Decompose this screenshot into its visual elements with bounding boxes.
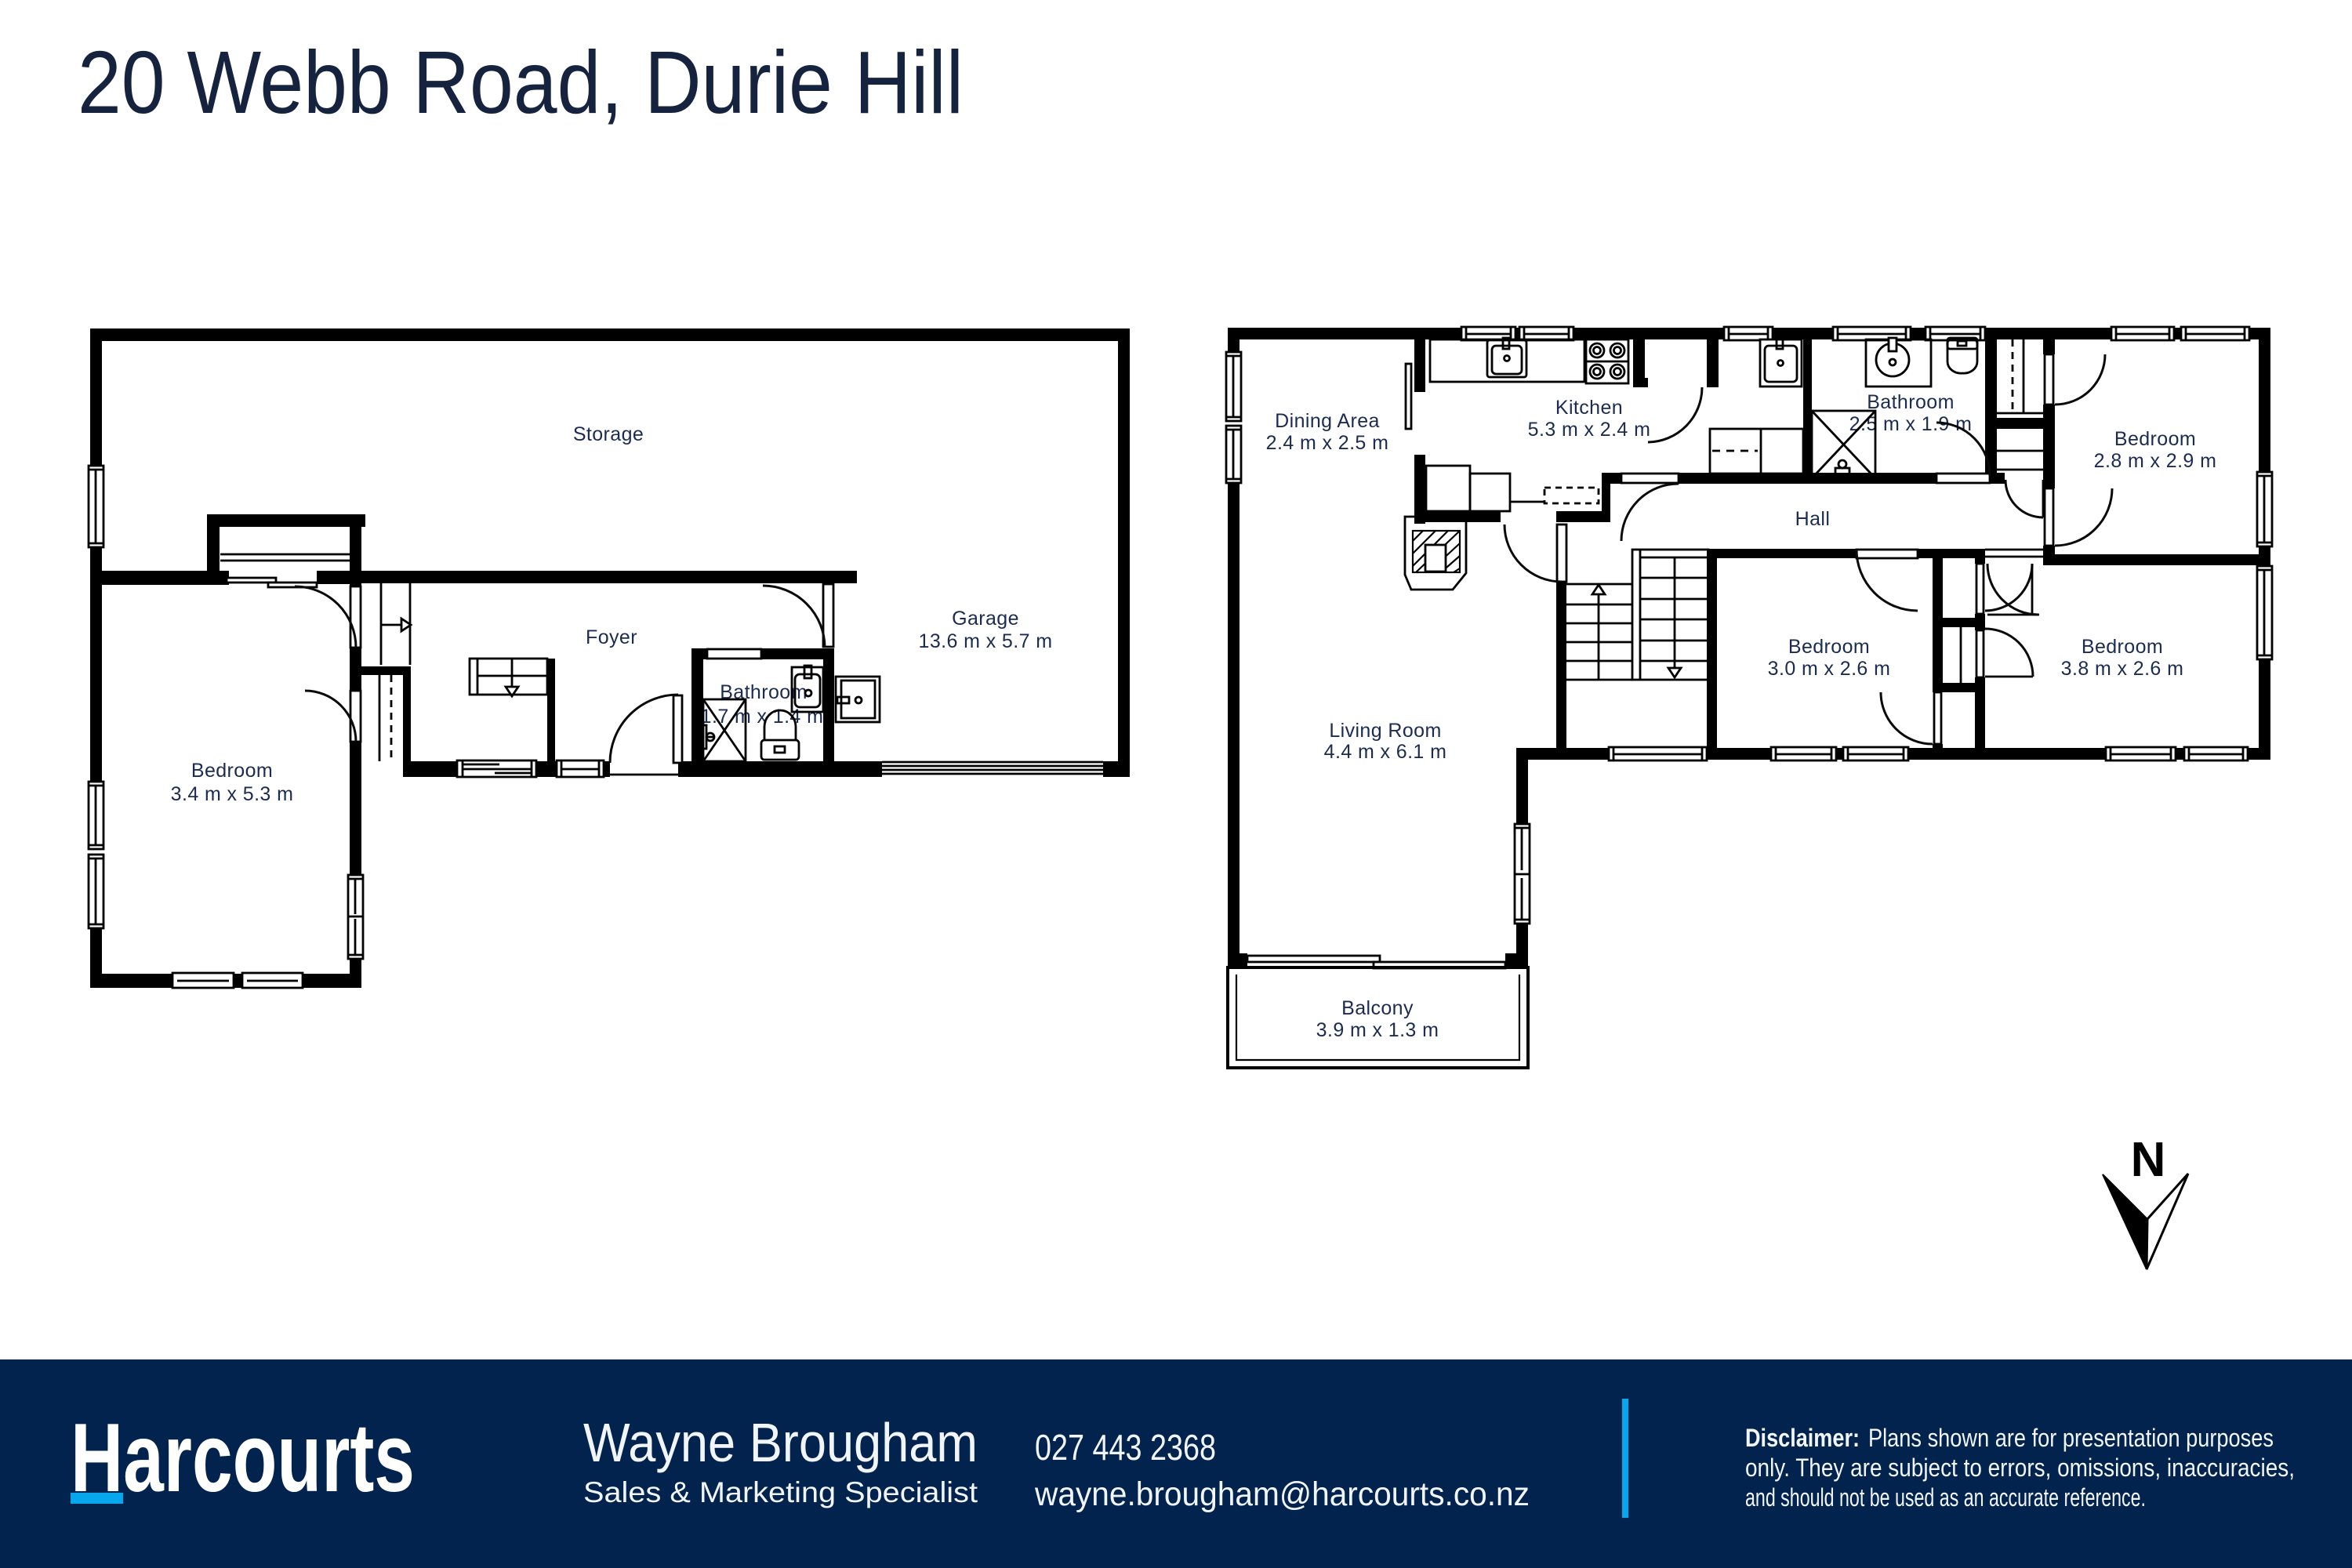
svg-text:Hall: Hall <box>1795 508 1831 530</box>
svg-text:Sales & Marketing Specialist: Sales & Marketing Specialist <box>583 1476 978 1508</box>
svg-text:Wayne Brougham: Wayne Brougham <box>583 1412 978 1473</box>
svg-text:Bathroom: Bathroom <box>1867 391 1955 413</box>
svg-text:Foyer: Foyer <box>586 626 637 648</box>
svg-text:3.8 m x 2.6 m: 3.8 m x 2.6 m <box>2061 658 2184 680</box>
svg-text:only. They are subject to err: only. They are subject to errors, omissi… <box>1745 1454 2295 1482</box>
svg-text:Bedroom: Bedroom <box>191 760 273 782</box>
svg-text:Garage: Garage <box>952 608 1019 630</box>
svg-text:Kitchen: Kitchen <box>1555 397 1623 419</box>
svg-text:Plans shown are for presentati: Plans shown are for presentation purpose… <box>1868 1424 2274 1452</box>
svg-text:Bedroom: Bedroom <box>2082 636 2163 658</box>
svg-text:Dining Area: Dining Area <box>1275 410 1380 432</box>
svg-text:4.4 m x 6.1 m: 4.4 m x 6.1 m <box>1324 741 1447 763</box>
svg-text:Balcony: Balcony <box>1341 997 1414 1019</box>
svg-text:027 443 2368: 027 443 2368 <box>1035 1427 1216 1468</box>
svg-text:Storage: Storage <box>573 423 644 445</box>
svg-text:20 Webb Road, Durie Hill: 20 Webb Road, Durie Hill <box>78 33 964 132</box>
svg-text:and should not be used as an a: and should not be used as an accurate re… <box>1745 1483 2146 1512</box>
svg-text:N: N <box>2131 1133 2166 1187</box>
svg-text:wayne.brougham@harcourts.co.nz: wayne.brougham@harcourts.co.nz <box>1034 1475 1530 1513</box>
svg-text:5.3 m x 2.4 m: 5.3 m x 2.4 m <box>1528 419 1651 441</box>
svg-text:3.9 m x 1.3 m: 3.9 m x 1.3 m <box>1316 1019 1439 1041</box>
svg-text:3.4 m x 5.3 m: 3.4 m x 5.3 m <box>171 783 294 805</box>
svg-text:Bedroom: Bedroom <box>1788 636 1870 658</box>
svg-text:Bedroom: Bedroom <box>2114 428 2196 450</box>
svg-text:Disclaimer:: Disclaimer: <box>1745 1424 1860 1452</box>
svg-text:3.0 m x 2.6 m: 3.0 m x 2.6 m <box>1768 658 1891 680</box>
svg-text:13.6 m x 5.7 m: 13.6 m x 5.7 m <box>919 630 1053 652</box>
svg-text:2.4 m x 2.5 m: 2.4 m x 2.5 m <box>1266 432 1389 454</box>
svg-text:2.8 m x 2.9 m: 2.8 m x 2.9 m <box>2094 450 2217 472</box>
svg-text:Living Room: Living Room <box>1329 720 1441 742</box>
